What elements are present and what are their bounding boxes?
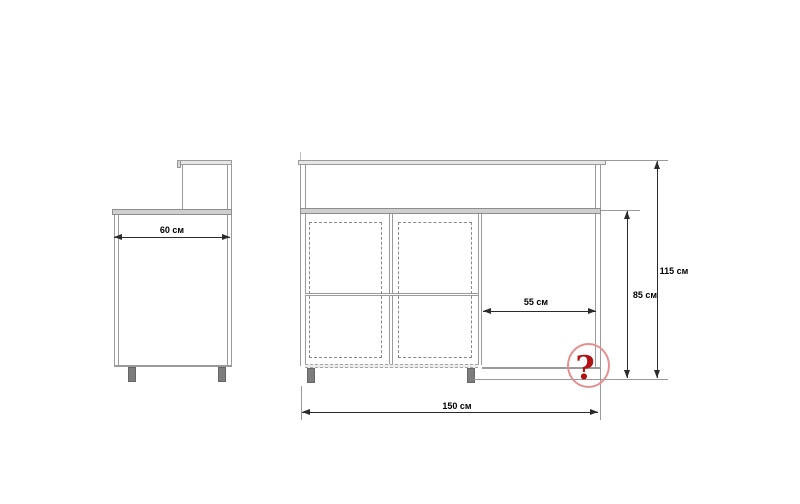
opening-arrow-right-icon (588, 308, 596, 314)
front-left-leg (307, 368, 315, 383)
side-top-shelf-board (177, 160, 232, 165)
worktop-height-arrow-up-icon (624, 211, 630, 219)
front-center-divider (389, 214, 393, 365)
front-left-door-outline (309, 222, 382, 358)
front-right-leg (467, 368, 475, 383)
drawing-canvas: 60 см 55 см 85 см (0, 0, 800, 504)
side-top-shelf-left-cap (177, 160, 181, 168)
front-cabinet-bottom-band (305, 364, 478, 368)
depth-dimension-line (114, 237, 230, 238)
width-dimension-line (302, 412, 598, 413)
question-mark: ? (569, 349, 601, 387)
opening-dimension-label: 55 см (511, 297, 561, 307)
width-dimension-label: 150 см (427, 401, 487, 411)
side-shelf-support-line (182, 165, 183, 209)
width-arrow-left-icon (302, 409, 310, 415)
side-front-leg (128, 367, 136, 382)
side-upper-right-panel (227, 165, 232, 209)
depth-dimension-label: 60 см (147, 225, 197, 235)
worktop-height-arrow-down-icon (624, 370, 630, 378)
opening-arrow-left-icon (483, 308, 491, 314)
total-height-label: 115 см (655, 266, 693, 276)
front-left-panel (300, 165, 306, 366)
side-back-leg (218, 367, 226, 382)
total-height-arrow-up-icon (654, 161, 660, 169)
opening-dimension-line (483, 311, 596, 312)
width-arrow-right-icon (590, 409, 598, 415)
counter-extension-line (601, 210, 640, 211)
total-height-arrow-down-icon (654, 370, 660, 378)
front-top-left-tick (300, 152, 301, 160)
front-counter-band (300, 208, 601, 214)
front-right-panel (595, 165, 601, 368)
depth-arrow-left-icon (114, 234, 122, 240)
front-right-door-outline (398, 222, 472, 358)
side-counter-top (112, 209, 232, 215)
front-top-board (298, 160, 606, 165)
front-cabinet-right-panel (478, 214, 482, 365)
depth-arrow-right-icon (222, 234, 230, 240)
